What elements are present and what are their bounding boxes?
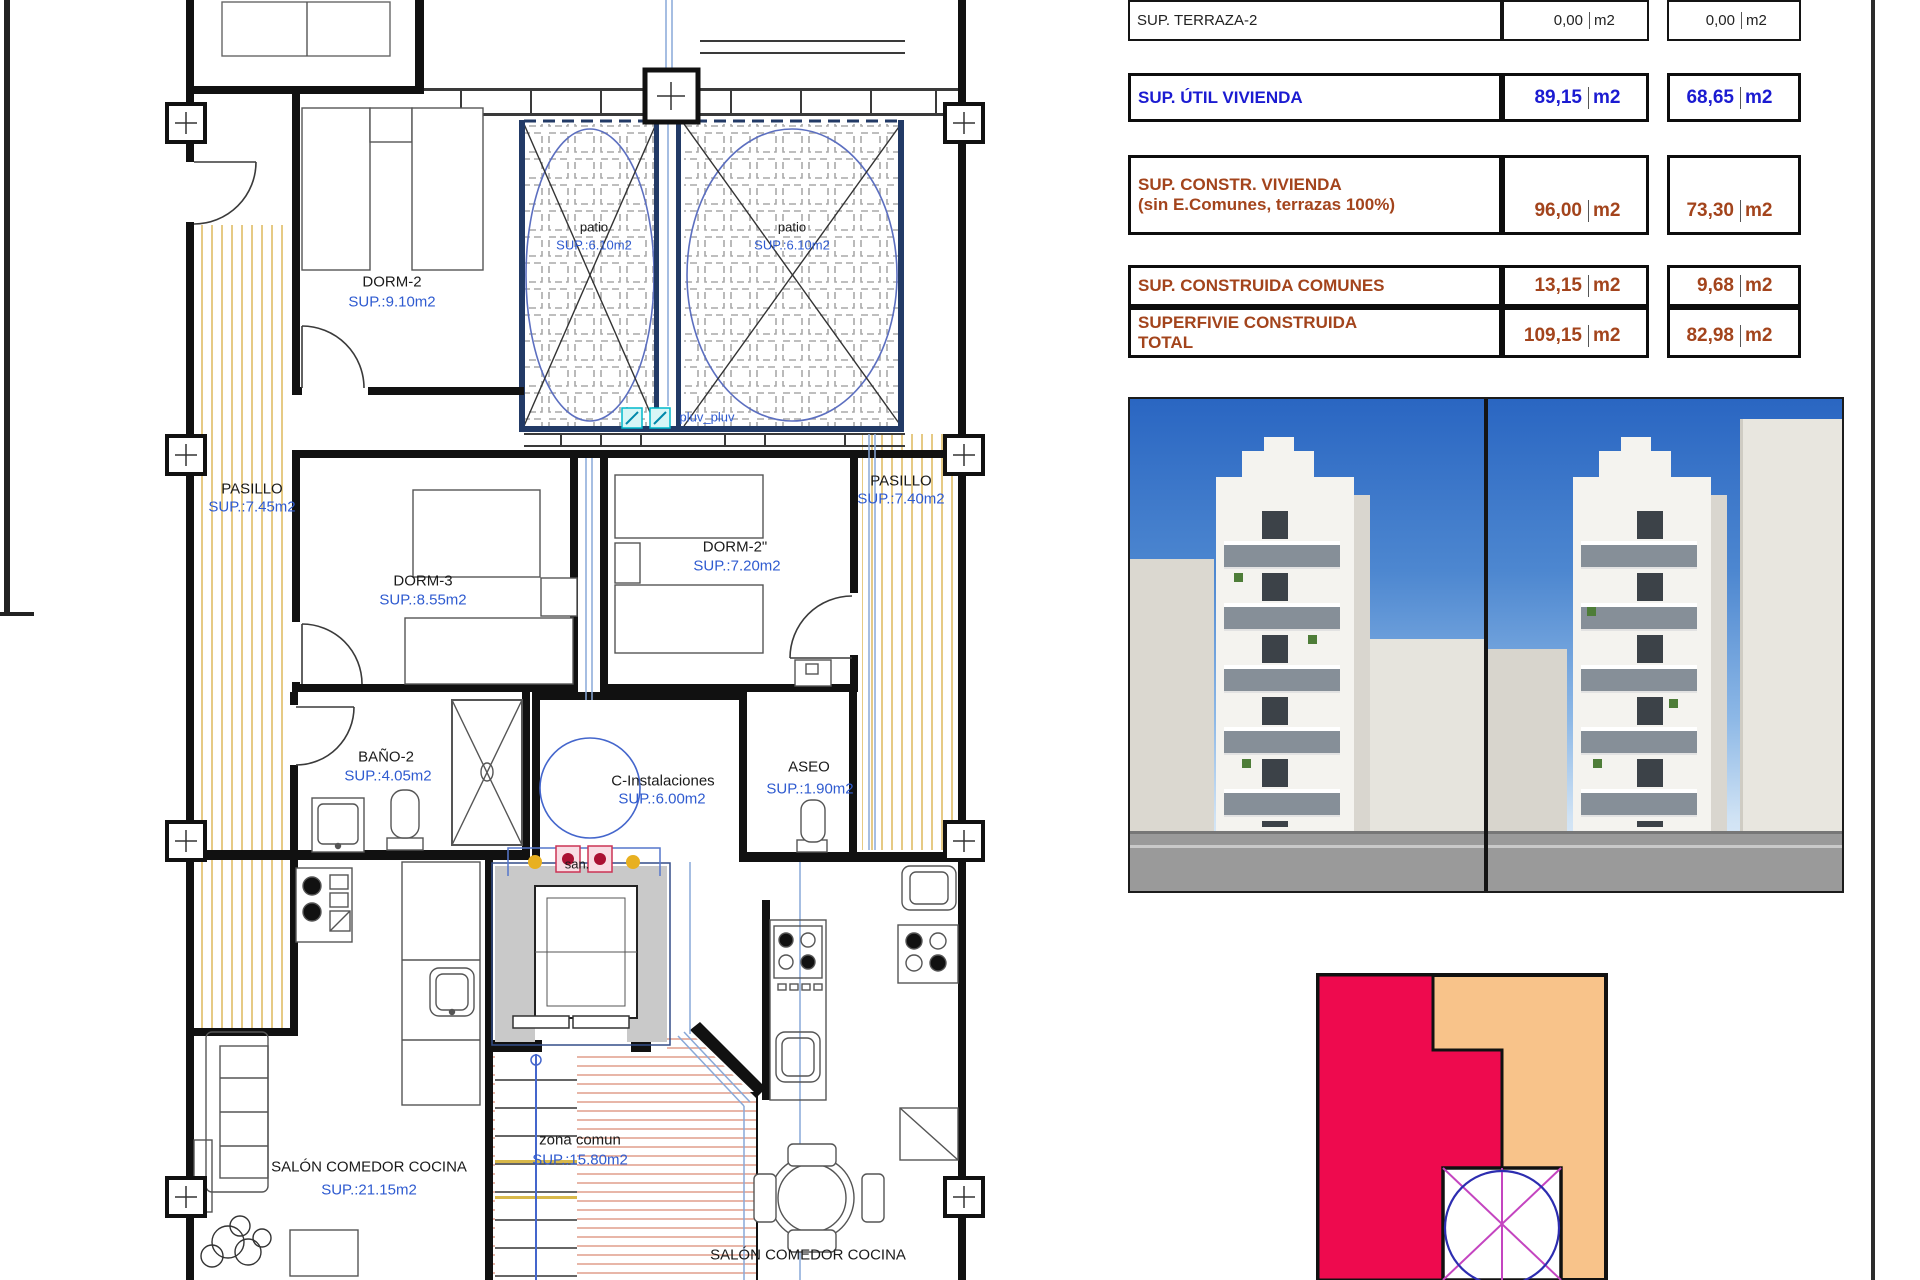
room-label-cinstalaciones: C-Instalaciones [611,774,714,789]
room-area-bano2: SUP.:4.05m2 [344,769,431,784]
patio-symbol [1443,1168,1561,1280]
room-label-dorm2b: DORM-2" [703,540,768,555]
room-label-dorm2: DORM-2 [362,275,421,290]
room-area-salon-left: SUP.:21.15m2 [321,1183,417,1198]
room-label-aseo: ASEO [788,760,830,775]
surface-area-table: SUP. TERRAZA-2 0,00m2 0,00m2 SUP. ÚTIL V… [1128,0,1802,360]
tower-roof [1242,451,1314,477]
page-edge-left [0,0,34,616]
room-label-dorm3: DORM-3 [393,574,452,589]
table-row-constr-vivienda: SUP. CONSTR. VIVIENDA(sin E.Comunes, ter… [1128,155,1801,235]
render-tower-right [1573,477,1711,831]
render-divider [1484,399,1488,891]
room-area-patio-right: SUP.:6.10m2 [754,239,830,252]
neighbor-building [1740,419,1844,831]
balcony-plant [1669,699,1678,708]
window-column [1262,511,1288,827]
floor-plan-drawing [0,0,1000,1280]
san-note: san. [565,858,590,871]
window-column [1637,511,1663,827]
room-area-dorm2b: SUP.:7.20m2 [693,559,780,574]
table-row-terraza: SUP. TERRAZA-2 0,00m2 0,00m2 [1128,0,1801,41]
render-tower-left [1216,477,1354,831]
room-area-pasillo-right: SUP.:7.40m2 [857,492,944,507]
tower-roof [1599,451,1671,477]
page-edge-right [1871,0,1875,1280]
neighbor-building [1356,639,1487,831]
balcony-plant [1242,759,1251,768]
tower-stack [1621,437,1651,453]
room-label-salon-left: SALÓN COMEDOR COCINA [271,1160,467,1175]
tower-shaded-face [1711,495,1727,831]
room-label-zona-comun: zona comun [539,1133,621,1148]
massing-diagram-svg [1315,970,1611,1280]
table-row-util-vivienda: SUP. ÚTIL VIVIENDA 89,15m2 68,65m2 [1128,73,1801,122]
room-area-pasillo-left: SUP.:7.45m2 [208,500,295,515]
massing-diagram [1315,970,1611,1280]
balcony-plant [1308,635,1317,644]
room-area-cinstalaciones: SUP.:6.00m2 [618,792,705,807]
table-row-construida-comunes: SUP. CONSTRUIDA COMUNES 13,15m2 9,68m2 [1128,265,1801,307]
neighbor-building [1487,649,1567,831]
room-label-pasillo-left: PASILLO [221,482,282,497]
room-area-dorm3: SUP.:8.55m2 [379,593,466,608]
room-label-pasillo-right: PASILLO [870,474,931,489]
patio-left [524,124,656,426]
room-label-salon-bottom: SALÓN COMEDOR COCINA [710,1248,906,1263]
room-area-aseo: SUP.:1.90m2 [766,782,853,797]
balcony-plant [1593,759,1602,768]
balcony-plant [1234,573,1243,582]
neighbor-building [1130,559,1214,831]
table-row-construida-total: SUPERFIVIE CONSTRUIDATOTAL 109,15m2 82,9… [1128,307,1801,358]
room-area-zona-comun: SUP.:15.80m2 [532,1153,628,1168]
elevator-shaft [492,863,670,1045]
tower-stack [1264,437,1294,453]
building-renders [1128,397,1844,893]
room-label-bano2: BAÑO-2 [358,750,414,765]
room-label-patio-left: patio [580,221,608,234]
balcony-plant [1587,607,1596,616]
tower-shaded-face [1354,495,1370,831]
patio-right [684,124,901,426]
room-area-patio-left: SUP.:6.10m2 [556,239,632,252]
pluv-note: pluv_pluv [680,411,735,424]
room-area-dorm2: SUP.:9.10m2 [348,295,435,310]
drawing-page: DORM-2 SUP.:9.10m2 patio SUP.:6.10m2 pat… [0,0,1920,1280]
room-label-patio-right: patio [778,221,806,234]
